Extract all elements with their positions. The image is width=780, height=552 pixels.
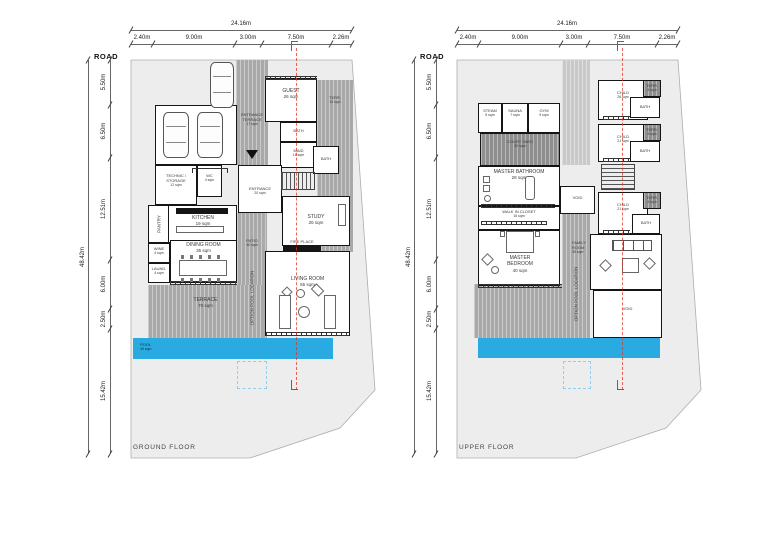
label-child-1: CHILD 26 sqm — [600, 90, 646, 99]
label-wine: WINE 4 sqm — [148, 246, 170, 255]
room-void-upper — [560, 186, 595, 214]
label-dining: DINING ROOM 35 sqm — [172, 242, 235, 254]
window-strip — [266, 332, 349, 336]
label-wc: WC 4 sqm — [197, 173, 222, 182]
label-gym: GYM 9 sqm — [528, 108, 560, 117]
closet-row — [481, 221, 547, 225]
section-line — [296, 48, 297, 390]
label-child-terr-1: TERR. 4 sqm — [643, 83, 661, 92]
dining-chairs — [181, 278, 225, 282]
label-bath-2: BATH — [630, 148, 660, 153]
label-child-3: CHILD 21 sqm — [600, 202, 646, 211]
dim-overall-height: 48.42m — [406, 247, 412, 267]
label-entrance: ENTRANCE 20 sqm — [239, 186, 281, 195]
dim-left-seg-2: 12.51m — [427, 199, 433, 219]
option-pool-outline — [237, 361, 267, 389]
dim-left-seg-0: 5.50m — [101, 74, 107, 91]
label-void-upper: VOID — [560, 195, 595, 200]
label-living: LIVING ROOM 65 sqm — [275, 276, 340, 288]
dim-left-seg-2: 12.51m — [101, 199, 107, 219]
floor-title-ground: GROUND FLOOR — [133, 444, 196, 451]
label-technic: TECHNIC / STORAGE 12 sqm — [157, 173, 195, 187]
label-maid: MAID 16 sqm — [280, 148, 317, 157]
room-guest — [265, 78, 317, 122]
dim-line-top-segments — [131, 44, 352, 45]
dim-top-seg-0: 2.40m — [134, 35, 151, 41]
pool — [478, 338, 660, 358]
zone-upper-terrace — [474, 284, 562, 338]
zone-terrace-70 — [148, 285, 263, 338]
zone-entrance-strip — [562, 60, 590, 165]
zone-court-yard — [480, 133, 560, 166]
label-terrace: TERRACE 70 sqm — [168, 297, 243, 309]
label-pantry: PANTRY — [157, 215, 162, 233]
coffee-table — [298, 306, 310, 318]
floor-title-upper: UPPER FLOOR — [459, 444, 514, 451]
label-study: STUDY 26 sqm — [290, 214, 342, 226]
dim-line-left-overall — [414, 60, 415, 454]
side-table — [296, 289, 305, 298]
site-boundaries — [0, 0, 780, 552]
option-pool-outline — [563, 361, 591, 389]
dim-top-seg-0: 2.40m — [460, 35, 477, 41]
shelf-unit — [612, 240, 652, 251]
label-bath-1: BATH — [630, 104, 660, 109]
washbasin — [483, 185, 490, 192]
car-glyph — [197, 112, 223, 158]
staircase — [281, 172, 315, 190]
sofa — [279, 295, 291, 329]
section-line — [622, 48, 623, 390]
dim-left-seg-3: 6.00m — [427, 276, 433, 293]
dining-table — [179, 260, 227, 276]
dim-left-seg-3: 6.00m — [101, 276, 107, 293]
car-glyph — [163, 112, 189, 158]
road-label: ROAD — [420, 52, 444, 61]
dim-top-seg-2: 3.00m — [566, 35, 583, 41]
window-strip — [478, 284, 562, 288]
nightstand — [535, 231, 540, 237]
label-option-pool: OPTION POOL LOCATION — [250, 271, 255, 326]
label-bath-guest: BATH — [280, 128, 317, 133]
label-side-terrace: TERR. 15 sqm — [319, 95, 351, 104]
stage: 24.16m 2.40m 9.00m 3.00m 7.50m 2.26m 48.… — [0, 0, 780, 552]
label-pool: POOL 49 sqm — [140, 342, 180, 351]
sofa — [324, 295, 336, 329]
staircase — [601, 164, 635, 190]
entrance-arrow-icon — [246, 150, 258, 159]
window-strip — [603, 116, 630, 120]
road-label: ROAD — [94, 52, 118, 61]
dim-overall-width: 24.16m — [557, 21, 577, 27]
window-strip — [603, 158, 630, 162]
label-bath-3: BATH — [632, 220, 660, 225]
label-laundry: LAUND. 4 sqm — [148, 266, 170, 275]
closet-row — [481, 204, 555, 208]
dim-top-seg-1: 9.00m — [512, 35, 529, 41]
label-child-terr-2: TERR. 4 sqm — [643, 127, 661, 136]
nightstand — [500, 231, 505, 237]
label-bath-maid: BATH — [313, 156, 339, 161]
label-closet: WALK IN CLOSET 16 sqm — [488, 209, 550, 218]
dim-top-seg-1: 9.00m — [186, 35, 203, 41]
label-patio: PATIO 40 sqm — [238, 238, 266, 247]
dim-left-seg-1: 6.50m — [101, 123, 107, 140]
label-entrance-terrace: ENTRANCE TERRACE 17 sqm — [238, 112, 266, 126]
section-marker-top-icon — [617, 41, 624, 51]
label-child-terr-3: TERR. 4 sqm — [643, 195, 661, 204]
label-child-2: CHILD 21 sqm — [600, 134, 646, 143]
car-glyph — [210, 62, 234, 108]
bed — [506, 231, 534, 253]
section-marker-top-icon — [291, 41, 298, 51]
dim-top-seg-4: 2.26m — [333, 35, 350, 41]
dim-left-seg-1: 6.50m — [427, 123, 433, 140]
label-family: FAMILY ROOM 39 sqm — [572, 240, 594, 254]
kitchen-island — [176, 226, 224, 233]
room-void-lower — [593, 290, 662, 338]
table — [622, 258, 639, 273]
window-strip — [603, 230, 630, 234]
dim-left-seg-5: 15.42m — [101, 381, 107, 401]
label-guest: GUEST 26 sqm — [266, 88, 316, 100]
kitchen-counter — [176, 208, 228, 214]
label-void-lower: VOID — [593, 306, 662, 311]
label-sauna: SAUNA 7 sqm — [502, 108, 528, 117]
dim-line-top-overall — [457, 30, 678, 31]
label-kitchen: KITCHEN 19 sqm — [173, 215, 233, 227]
dim-left-seg-4: 2.50m — [427, 311, 433, 328]
dim-line-top-overall — [131, 30, 352, 31]
fireplace-hearth — [283, 245, 321, 251]
dim-left-seg-0: 5.50m — [427, 74, 433, 91]
dim-left-seg-4: 2.50m — [101, 311, 107, 328]
dim-overall-height: 48.42m — [80, 247, 86, 267]
label-master-bedroom: MASTER BEDROOM 40 sqm — [498, 255, 542, 273]
dim-overall-width: 24.16m — [231, 21, 251, 27]
window-strip — [265, 76, 317, 80]
dim-top-seg-4: 2.26m — [659, 35, 676, 41]
label-option-pool: OPTION POOL LOCATION — [574, 267, 579, 322]
dim-left-seg-5: 15.42m — [427, 381, 433, 401]
dining-chairs — [181, 255, 225, 259]
label-court-yard: COURT YARD 30 sqm — [498, 139, 542, 148]
label-master-bathroom: MASTER BATHROOM 28 sqm — [488, 169, 550, 181]
toilet — [484, 195, 491, 202]
section-marker-bottom-icon — [291, 380, 298, 390]
label-fireplace: FIRE PLACE — [283, 239, 321, 244]
label-steam: STEAM 5 sqm — [478, 108, 502, 117]
section-marker-bottom-icon — [617, 380, 624, 390]
room-living — [265, 251, 350, 336]
dim-line-top-segments — [457, 44, 678, 45]
dim-line-left-overall — [88, 60, 89, 454]
dim-top-seg-2: 3.00m — [240, 35, 257, 41]
